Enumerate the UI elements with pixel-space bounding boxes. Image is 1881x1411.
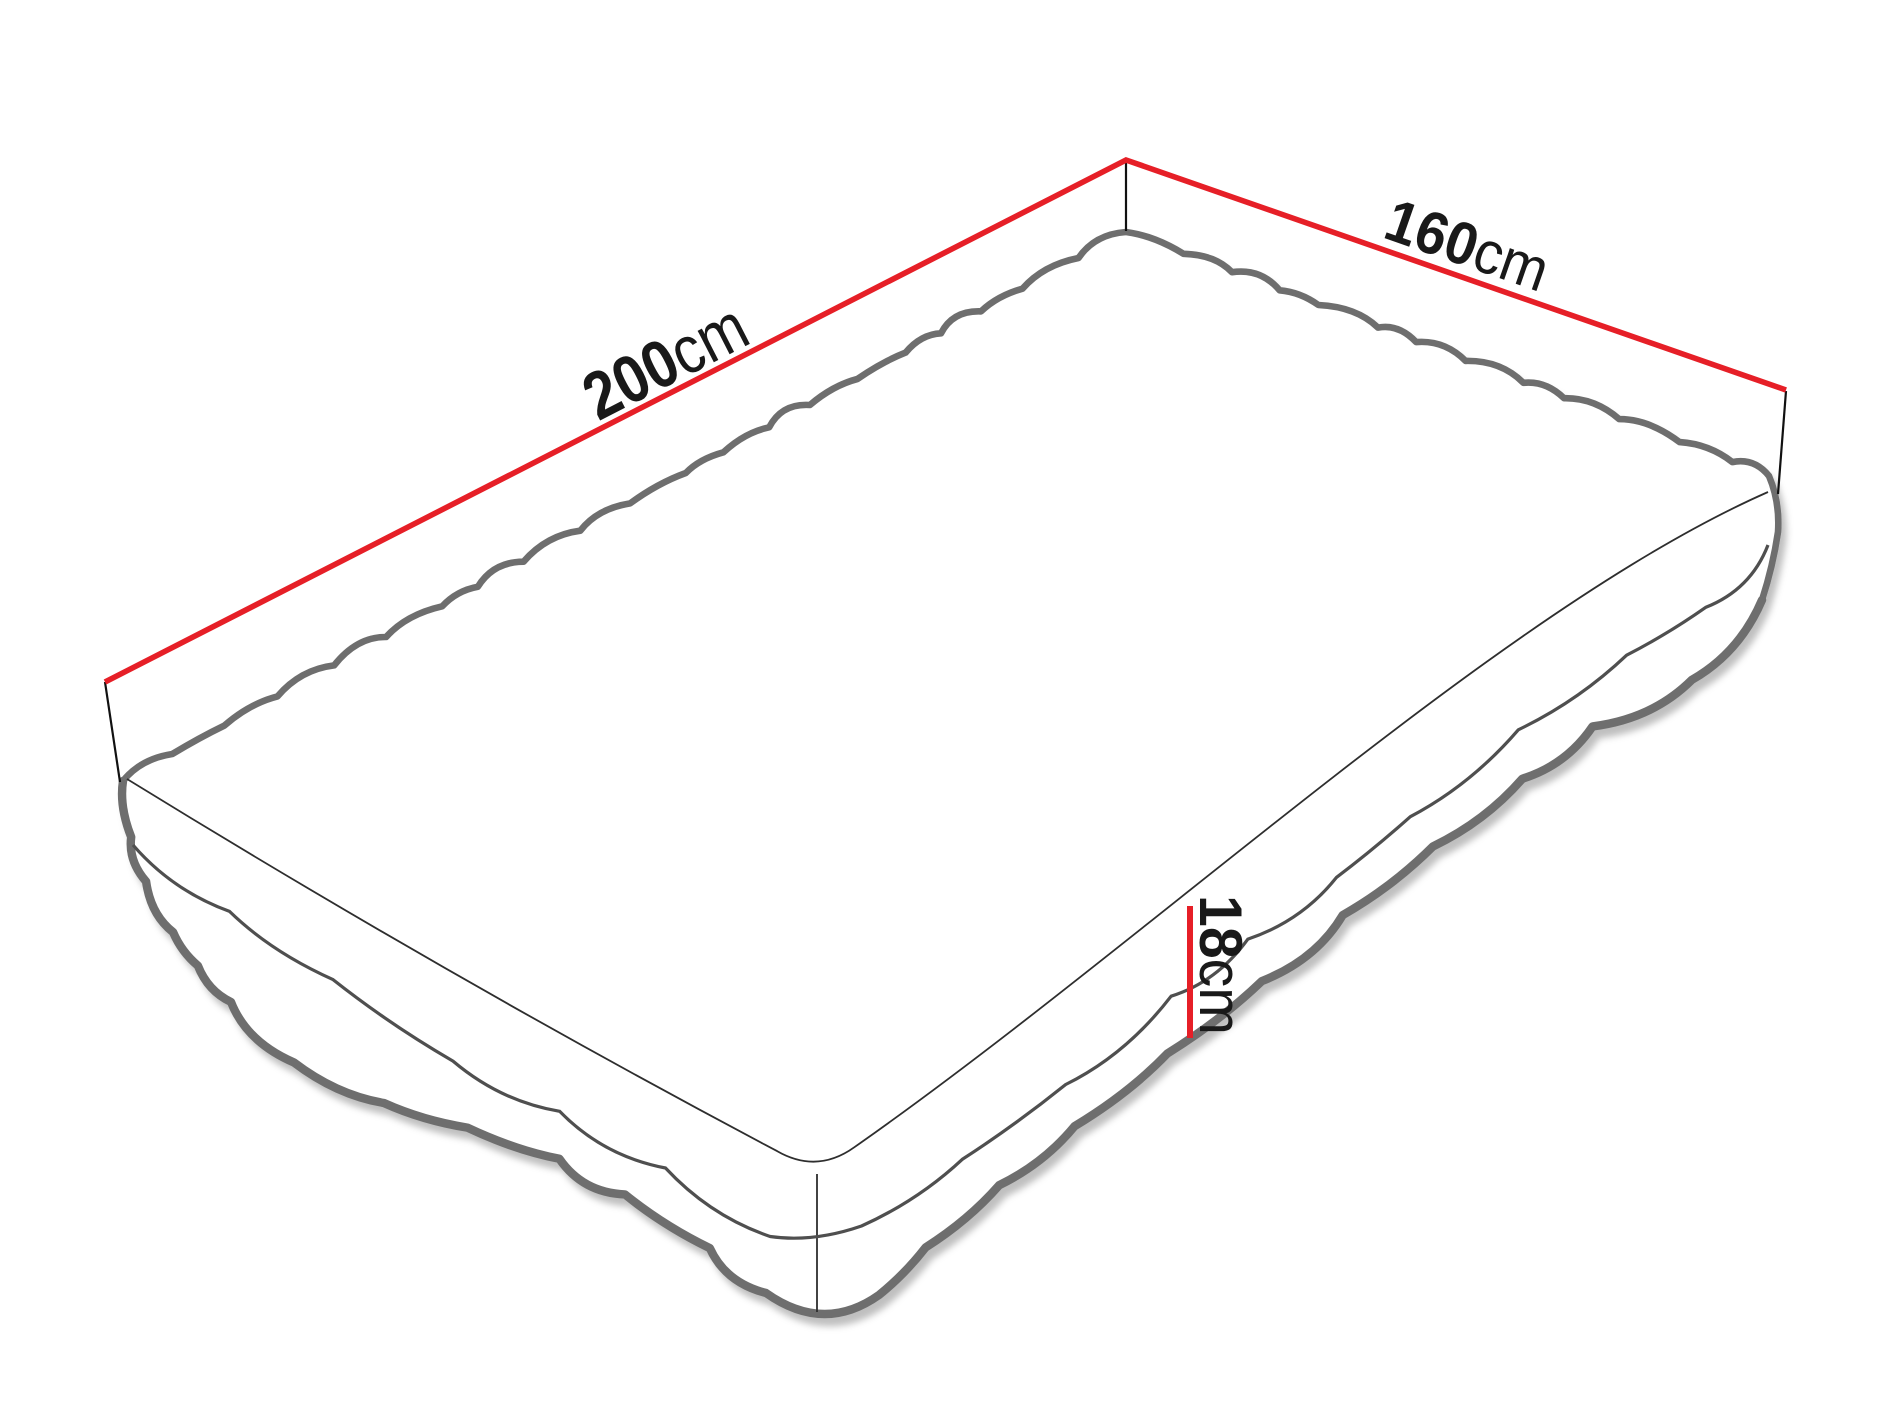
svg-text:18cm: 18cm xyxy=(1187,895,1254,1035)
svg-text:200cm: 200cm xyxy=(571,289,760,435)
svg-text:160cm: 160cm xyxy=(1377,186,1558,305)
